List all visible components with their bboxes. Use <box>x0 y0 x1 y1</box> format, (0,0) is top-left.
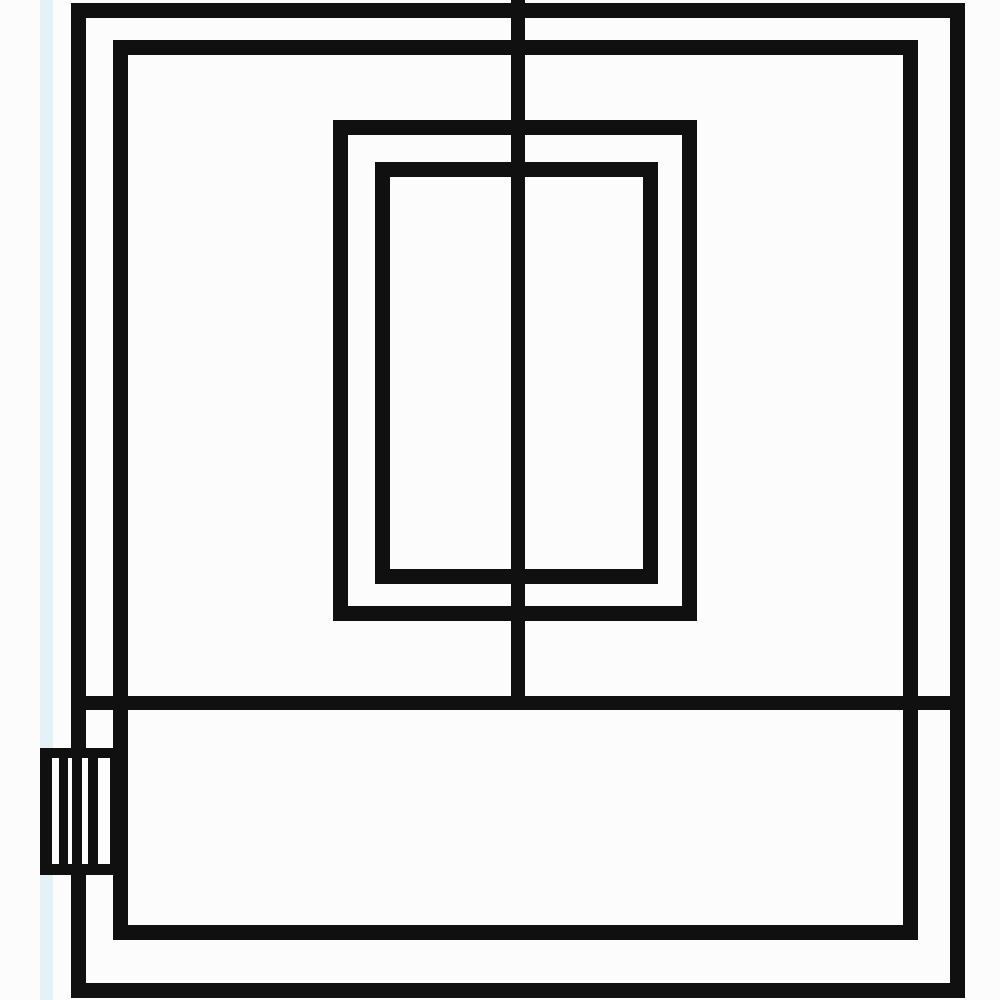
center-divider-line <box>511 0 525 710</box>
door-window-inner-outline <box>375 162 658 584</box>
connector-top-edge <box>40 748 128 758</box>
connector-bottom-edge <box>40 864 128 875</box>
door-window-outer-outline <box>333 120 697 621</box>
connector-right-edge <box>110 748 128 875</box>
diagram-canvas <box>0 0 1000 1000</box>
connector-left-edge <box>40 748 52 875</box>
connector-pin-2 <box>72 748 82 875</box>
connector-pin-3 <box>88 748 98 875</box>
connector-backing <box>40 748 128 875</box>
outer-casing-outline <box>71 3 965 998</box>
inner-casing-outline <box>113 40 918 940</box>
scan-edge-strip <box>40 0 53 1000</box>
separator-line <box>71 696 965 710</box>
connector-pin-1 <box>59 748 68 875</box>
